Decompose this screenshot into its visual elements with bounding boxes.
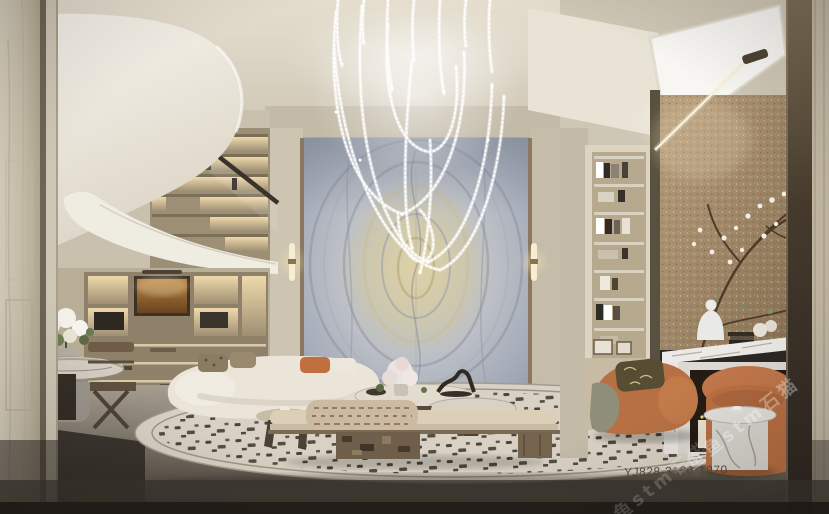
- living-room-render: YJ828-3120*1970 鱼鱼stm石猫 鱼鱼stm石猫: [0, 0, 829, 514]
